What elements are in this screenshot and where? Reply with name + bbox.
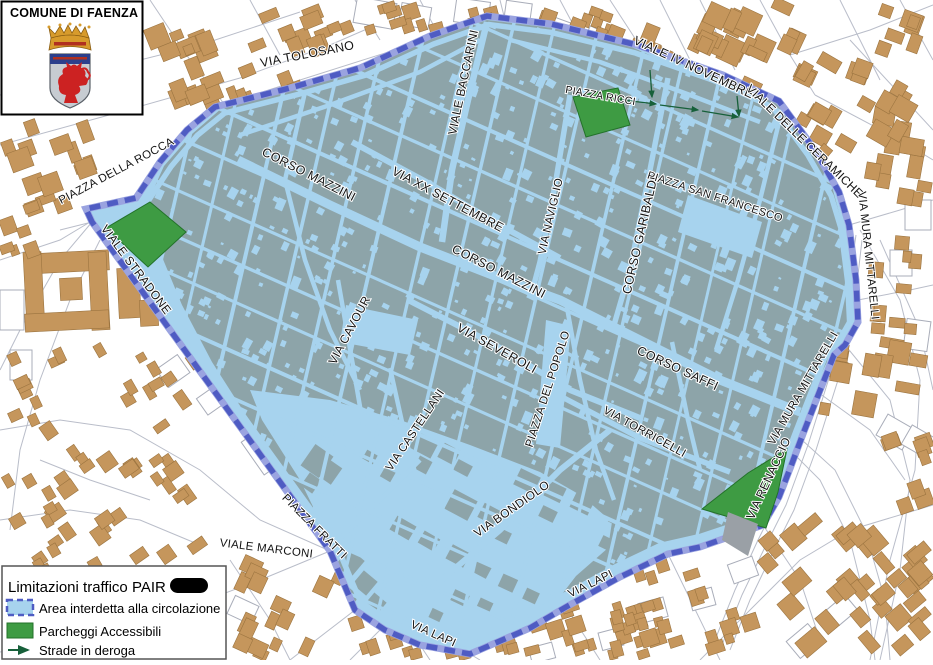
svg-text:Strade in deroga: Strade in deroga <box>39 643 136 658</box>
svg-text:COMUNE DI FAENZA: COMUNE DI FAENZA <box>10 6 138 20</box>
svg-text:Area interdetta alla circolazi: Area interdetta alla circolazione <box>39 601 220 616</box>
svg-text:Limitazioni traffico PAIR: Limitazioni traffico PAIR <box>8 579 166 596</box>
svg-text:Parcheggi Accessibili: Parcheggi Accessibili <box>39 624 161 639</box>
